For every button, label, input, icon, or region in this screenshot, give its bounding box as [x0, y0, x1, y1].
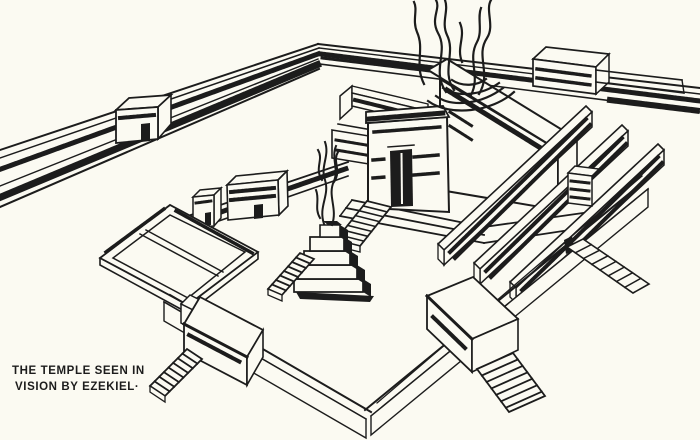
temple-porch	[366, 106, 449, 212]
gate-door	[141, 123, 150, 142]
ezekiel-temple-illustration: THE TEMPLE SEEN IN VISION BY EZEKIEL·	[0, 0, 700, 440]
altar-shadow	[296, 292, 374, 302]
inner-gatehouse-large	[227, 171, 288, 220]
near-left-stairs	[150, 349, 202, 402]
caption-line-2: VISION BY EZEKIEL·	[15, 381, 139, 393]
caption-line-1: THE TEMPLE SEEN IN	[12, 365, 145, 377]
near-wall-left	[150, 295, 371, 438]
caption: THE TEMPLE SEEN IN VISION BY EZEKIEL·	[12, 365, 145, 393]
corner-chambers	[100, 205, 258, 313]
temple-drawing: THE TEMPLE SEEN IN VISION BY EZEKIEL·	[0, 0, 700, 440]
northeast-annex	[533, 47, 684, 94]
chamber-box	[568, 166, 599, 206]
near-left-gatehouse	[184, 297, 263, 385]
